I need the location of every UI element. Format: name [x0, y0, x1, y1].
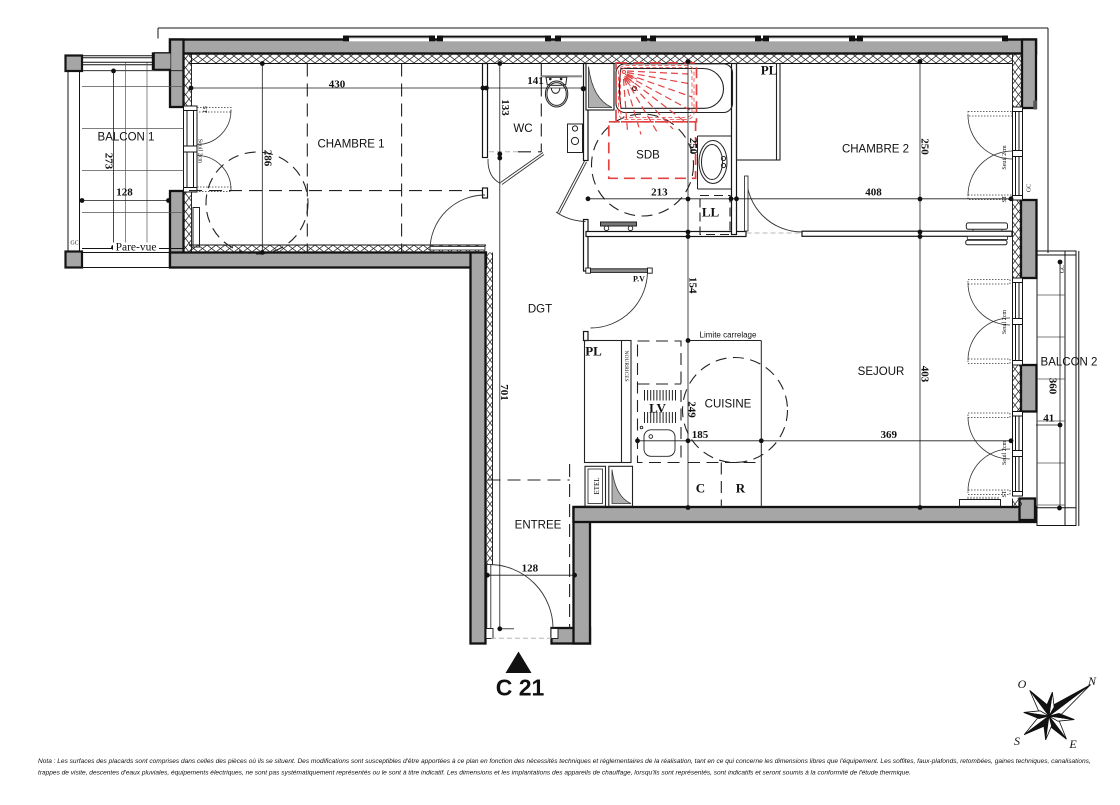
svg-text:ST: ST	[201, 106, 207, 113]
svg-text:Pare-vue: Pare-vue	[116, 242, 157, 254]
svg-text:ETEL: ETEL	[593, 477, 601, 494]
svg-text:GC: GC	[1027, 184, 1033, 192]
svg-text:ENTREE: ENTREE	[515, 520, 562, 532]
svg-text:Seuil 2cm: Seuil 2cm	[1002, 310, 1008, 334]
svg-text:360: 360	[1047, 378, 1059, 395]
svg-text:Seuil 2cm: Seuil 2cm	[1002, 145, 1008, 169]
svg-text:P.V: P.V	[633, 275, 645, 284]
svg-text:NOURRICES: NOURRICES	[623, 351, 629, 382]
svg-text:GC: GC	[70, 241, 78, 247]
svg-text:403: 403	[919, 366, 931, 383]
svg-text:41: 41	[1043, 413, 1054, 425]
svg-text:250: 250	[687, 138, 699, 155]
svg-text:369: 369	[881, 429, 898, 441]
svg-text:ST: ST	[1002, 195, 1008, 202]
svg-text:Seuil 2cm: Seuil 2cm	[197, 139, 203, 163]
svg-text:N: N	[1087, 674, 1097, 688]
svg-text:CHAMBRE 1: CHAMBRE 1	[317, 139, 384, 151]
svg-text:250: 250	[919, 138, 931, 155]
svg-text:PL: PL	[761, 63, 778, 78]
svg-text:ST: ST	[1002, 490, 1008, 497]
svg-text:701: 701	[498, 384, 510, 401]
svg-text:C: C	[696, 481, 705, 496]
svg-text:430: 430	[329, 78, 346, 90]
svg-text:LV: LV	[649, 401, 666, 416]
svg-text:BALCON 2: BALCON 2	[1041, 357, 1098, 369]
svg-text:O: O	[1018, 677, 1027, 691]
svg-text:PL: PL	[585, 344, 602, 359]
svg-text:GC: GC	[1060, 265, 1066, 273]
svg-text:408: 408	[865, 187, 882, 199]
svg-text:133: 133	[499, 99, 511, 116]
svg-text:S: S	[1014, 734, 1020, 748]
svg-text:C 21: C 21	[496, 675, 545, 701]
svg-text:Limite carrelage: Limite carrelage	[700, 331, 757, 340]
svg-text:141: 141	[527, 75, 544, 87]
svg-text:273: 273	[103, 153, 115, 170]
svg-text:BALCON 1: BALCON 1	[98, 132, 155, 144]
svg-text:SDB: SDB	[636, 150, 660, 162]
svg-text:E: E	[1068, 737, 1077, 751]
svg-text:WC: WC	[513, 123, 532, 135]
svg-text:286: 286	[262, 150, 274, 167]
svg-text:DGT: DGT	[528, 304, 552, 316]
svg-text:213: 213	[651, 187, 668, 199]
svg-text:CHAMBRE 2: CHAMBRE 2	[842, 144, 909, 156]
svg-text:Nota : Les surfaces des placar: Nota : Les surfaces des placards sont co…	[38, 758, 1091, 765]
svg-text:128: 128	[522, 563, 539, 575]
svg-text:185: 185	[692, 429, 709, 441]
svg-text:LL: LL	[702, 205, 720, 220]
svg-text:trappes de visite, descentes d: trappes de visite, descentes d'eaux pluv…	[38, 770, 911, 777]
svg-text:R: R	[736, 481, 746, 496]
svg-text:Seuil 2cm: Seuil 2cm	[1002, 440, 1008, 464]
svg-text:154: 154	[687, 277, 699, 294]
svg-text:CUISINE: CUISINE	[705, 399, 752, 411]
svg-text:SEJOUR: SEJOUR	[858, 366, 905, 378]
svg-text:128: 128	[116, 186, 133, 198]
svg-text:249: 249	[686, 401, 698, 418]
